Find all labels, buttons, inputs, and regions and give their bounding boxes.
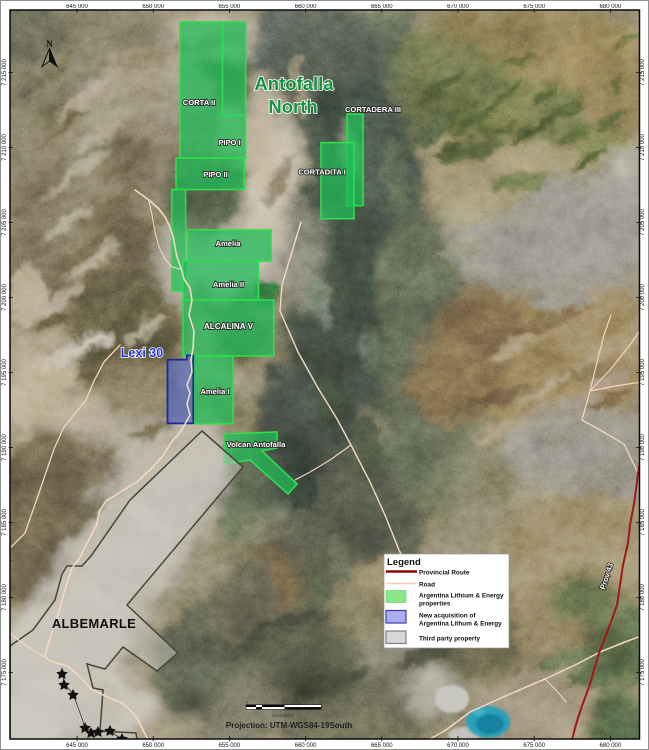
svg-text:Argentina Lithum & Energy: Argentina Lithum & Energy [419,621,502,628]
svg-text:PIPO II: PIPO II [203,170,227,179]
svg-text:7 190 000: 7 190 000 [2,433,8,460]
svg-text:7 195 000: 7 195 000 [2,358,8,385]
svg-text:CORTADITA I: CORTADITA I [298,168,346,177]
svg-text:North: North [268,96,317,117]
svg-text:ALCALINA V: ALCALINA V [204,322,254,331]
svg-text:ALBEMARLE: ALBEMARLE [52,616,136,631]
svg-text:5: 5 [319,701,321,705]
svg-text:Volcan Antofalla: Volcan Antofalla [227,440,286,449]
svg-text:7 175 000: 7 175 000 [2,658,8,685]
svg-text:Amelia: Amelia [216,239,242,248]
svg-text:7 185 000: 7 185 000 [2,508,8,535]
svg-text:Provincial Route: Provincial Route [419,570,470,577]
svg-text:Kilometres: Kilometres [272,713,294,718]
svg-text:CORTA II: CORTA II [183,98,215,107]
svg-text:New acquisition of: New acquisition of [419,613,476,620]
svg-text:Argentina Lithium & Energy: Argentina Lithium & Energy [419,593,504,600]
svg-text:7 210 000: 7 210 000 [2,133,8,160]
svg-text:7 180 000: 7 180 000 [2,583,8,610]
svg-text:680 000: 680 000 [600,743,622,749]
svg-text:N: N [46,39,53,49]
svg-text:645 000: 645 000 [66,743,88,749]
svg-text:7 205 000: 7 205 000 [2,208,8,235]
svg-text:660 000: 660 000 [295,743,317,749]
svg-text:properties: properties [419,601,451,608]
svg-text:Legend: Legend [387,557,421,568]
svg-text:7 200 000: 7 200 000 [2,283,8,310]
svg-text:Antofalla: Antofalla [254,73,334,94]
svg-text:Amelia II: Amelia II [213,280,244,289]
svg-text:CORTADERA III: CORTADERA III [345,105,401,114]
svg-text:0: 0 [246,701,248,705]
svg-text:650 000: 650 000 [142,743,164,749]
svg-text:Lexi 30: Lexi 30 [121,346,163,360]
svg-text:670 000: 670 000 [447,743,469,749]
svg-text:655 000: 655 000 [219,743,241,749]
svg-text:Third party property: Third party property [419,636,481,643]
svg-text:7 215 000: 7 215 000 [2,58,8,85]
svg-text:675 000: 675 000 [523,743,545,749]
svg-text:665 000: 665 000 [371,743,393,749]
svg-text:Amelia I: Amelia I [200,387,229,396]
svg-text:Projection: UTM-WGS84-19South: Projection: UTM-WGS84-19South [226,721,352,730]
svg-text:Road: Road [419,582,435,589]
svg-text:PIPO I: PIPO I [218,138,240,147]
